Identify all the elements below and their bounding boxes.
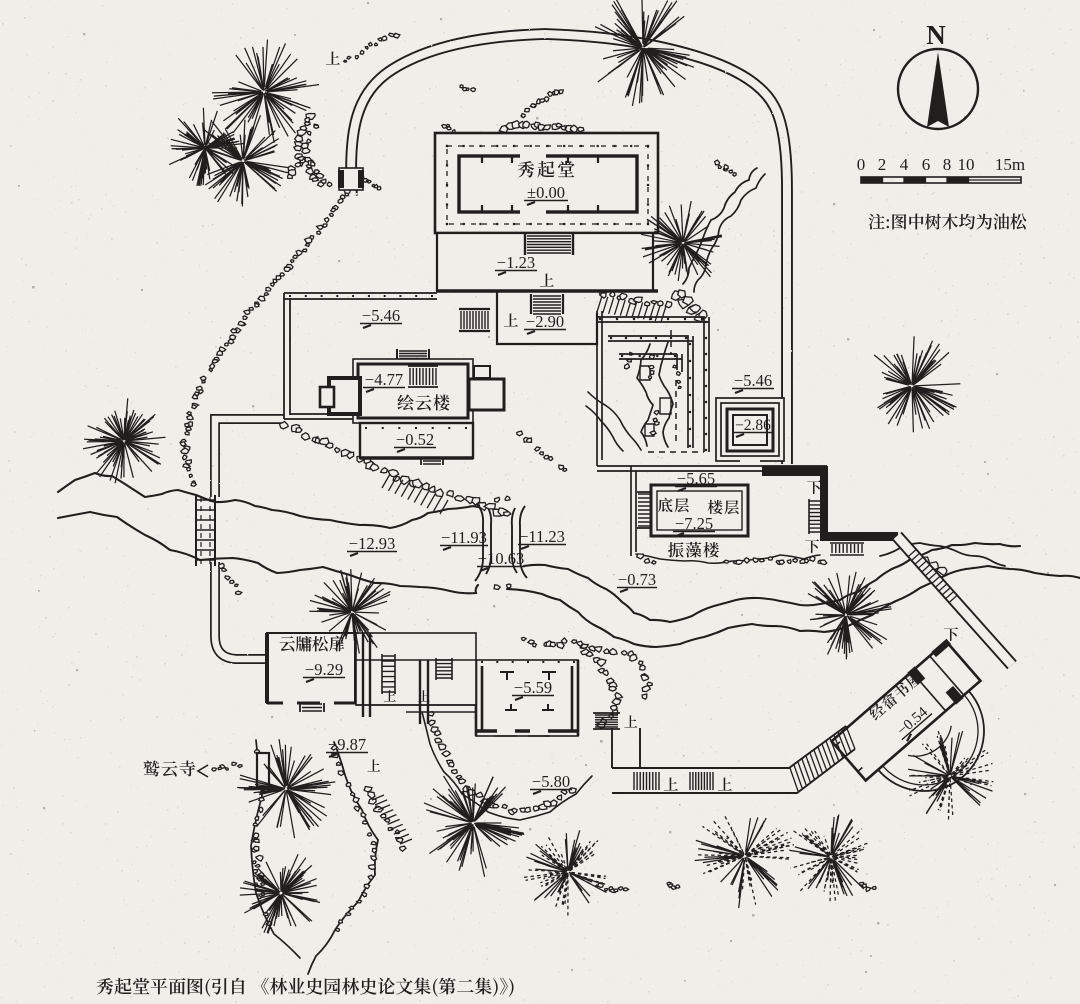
svg-text:10: 10: [958, 155, 975, 174]
svg-text:−5.80: −5.80: [532, 772, 570, 791]
svg-text:秀起堂平面图(引自 《林业史园林史论文集(第二集)》): 秀起堂平面图(引自 《林业史园林史论文集(第二集)》): [96, 973, 515, 999]
svg-text:N: N: [926, 20, 946, 50]
svg-text:0: 0: [857, 155, 866, 174]
svg-text:绘云楼: 绘云楼: [397, 389, 451, 414]
svg-text:−0.52: −0.52: [396, 430, 434, 449]
svg-text:−5.65: −5.65: [677, 469, 715, 488]
svg-text:6: 6: [922, 155, 931, 174]
svg-text:上: 上: [717, 774, 732, 795]
svg-text:−2.90: −2.90: [526, 312, 564, 331]
svg-text:下: 下: [806, 477, 821, 498]
svg-text:上: 上: [417, 686, 430, 705]
svg-text:−0.73: −0.73: [618, 570, 656, 589]
svg-text:−11.23: −11.23: [519, 527, 565, 546]
svg-text:4: 4: [900, 155, 909, 174]
svg-text:−5.59: −5.59: [514, 678, 552, 697]
svg-text:注:图中树木均为油松: 注:图中树木均为油松: [868, 208, 1027, 233]
svg-text:−12.93: −12.93: [349, 534, 395, 553]
svg-text:2: 2: [878, 155, 887, 174]
svg-text:−10.63: −10.63: [478, 549, 524, 568]
svg-text:上: 上: [503, 310, 518, 331]
svg-text:上: 上: [383, 686, 396, 705]
svg-text:云牗松扉: 云牗松扉: [279, 631, 345, 655]
svg-text:−1.23: −1.23: [497, 253, 535, 272]
svg-text:振藻楼: 振藻楼: [668, 537, 721, 561]
svg-text:上: 上: [367, 756, 381, 776]
svg-text:−9.29: −9.29: [305, 660, 343, 679]
svg-text:−11.93: −11.93: [441, 528, 487, 547]
svg-text:15m: 15m: [995, 155, 1025, 174]
svg-text:上: 上: [663, 774, 678, 795]
svg-text:下: 下: [804, 536, 819, 557]
svg-text:鹫云寺: 鹫云寺: [143, 755, 197, 780]
svg-text:上: 上: [539, 270, 554, 291]
svg-text:−2.86: −2.86: [735, 417, 771, 434]
svg-text:−7.25: −7.25: [675, 514, 713, 533]
svg-text:−9.87: −9.87: [328, 735, 366, 754]
svg-text:8: 8: [943, 155, 952, 174]
svg-text:上: 上: [624, 712, 638, 732]
svg-text:上: 上: [325, 48, 340, 69]
svg-text:−5.46: −5.46: [734, 371, 772, 390]
svg-text:−4.77: −4.77: [365, 370, 403, 389]
svg-text:秀起堂: 秀起堂: [517, 156, 577, 182]
svg-text:±0.00: ±0.00: [527, 183, 565, 202]
svg-text:−5.46: −5.46: [362, 306, 400, 325]
svg-text:底层: 底层: [657, 494, 690, 516]
